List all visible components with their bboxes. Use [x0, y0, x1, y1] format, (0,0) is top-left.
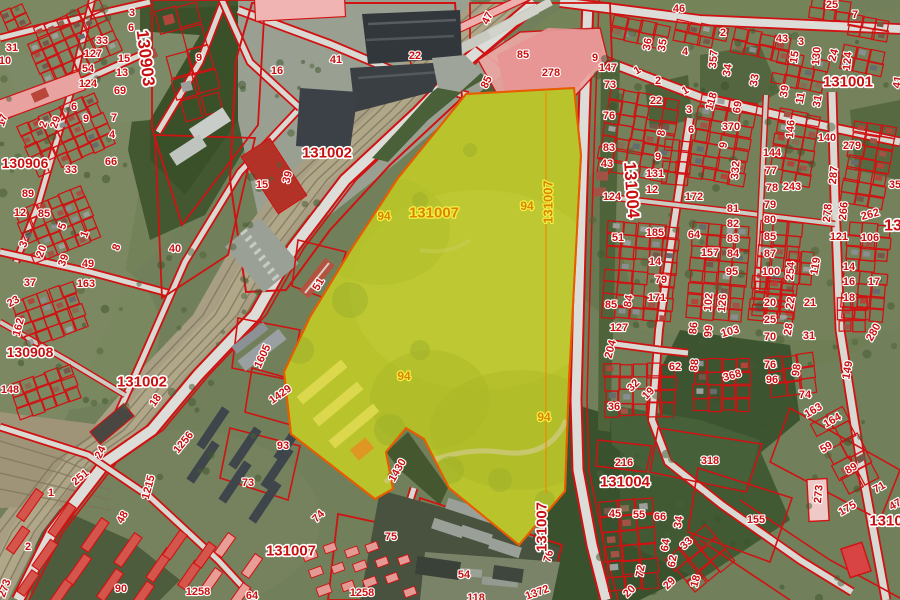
svg-text:14: 14	[649, 256, 662, 268]
svg-text:84: 84	[727, 248, 740, 260]
svg-text:78: 78	[766, 182, 778, 194]
svg-text:140: 140	[818, 132, 836, 144]
svg-text:118: 118	[467, 592, 485, 600]
svg-text:4: 4	[109, 129, 116, 141]
svg-text:15: 15	[788, 50, 802, 64]
svg-text:54: 54	[82, 63, 95, 75]
svg-text:243: 243	[783, 181, 801, 193]
svg-text:254: 254	[784, 261, 798, 281]
svg-text:22: 22	[409, 50, 421, 62]
svg-text:18: 18	[843, 292, 855, 304]
svg-text:55: 55	[633, 509, 645, 521]
svg-text:131007: 131007	[266, 542, 316, 559]
svg-text:3: 3	[686, 104, 692, 116]
svg-text:31: 31	[803, 330, 815, 342]
svg-text:1: 1	[48, 487, 54, 499]
svg-text:148: 148	[1, 384, 19, 396]
svg-text:64: 64	[688, 229, 701, 241]
svg-text:40: 40	[169, 243, 181, 255]
svg-text:70: 70	[764, 331, 776, 343]
svg-text:77: 77	[765, 165, 777, 177]
svg-text:130: 130	[810, 46, 824, 65]
svg-text:64: 64	[246, 590, 259, 600]
svg-text:127: 127	[84, 48, 102, 60]
svg-text:127: 127	[610, 322, 628, 334]
svg-text:10: 10	[0, 55, 11, 67]
svg-text:94: 94	[520, 199, 534, 213]
svg-text:12: 12	[646, 184, 658, 196]
svg-text:131001: 131001	[823, 73, 873, 90]
svg-text:278: 278	[542, 67, 560, 79]
svg-text:102: 102	[702, 292, 716, 311]
svg-text:4: 4	[682, 46, 689, 58]
svg-text:25: 25	[764, 314, 776, 326]
svg-text:157: 157	[701, 247, 719, 259]
svg-text:76: 76	[764, 359, 776, 371]
svg-text:279: 279	[843, 140, 861, 152]
svg-text:33: 33	[748, 73, 762, 87]
svg-text:6: 6	[71, 101, 77, 113]
svg-text:73: 73	[242, 477, 254, 489]
svg-text:85: 85	[764, 231, 776, 243]
svg-text:88: 88	[688, 358, 701, 371]
svg-text:287: 287	[827, 165, 841, 184]
svg-text:124: 124	[841, 51, 855, 71]
svg-text:46: 46	[673, 3, 685, 15]
svg-text:73: 73	[604, 79, 616, 91]
svg-text:69: 69	[114, 85, 126, 97]
svg-text:171: 171	[648, 292, 666, 304]
svg-text:11: 11	[794, 91, 808, 105]
svg-text:146: 146	[784, 119, 798, 138]
svg-text:41: 41	[891, 75, 900, 89]
svg-text:62: 62	[669, 361, 681, 373]
svg-text:9: 9	[655, 151, 661, 163]
svg-text:66: 66	[654, 511, 666, 523]
svg-text:54: 54	[458, 569, 471, 581]
svg-text:332: 332	[729, 160, 743, 179]
svg-text:17: 17	[868, 276, 880, 288]
svg-text:82: 82	[727, 218, 739, 230]
svg-text:2: 2	[25, 541, 31, 553]
svg-text:121: 121	[830, 231, 848, 243]
svg-text:80: 80	[764, 214, 776, 226]
svg-text:36: 36	[641, 37, 655, 51]
svg-text:85: 85	[605, 299, 617, 311]
svg-text:89: 89	[22, 188, 34, 200]
svg-text:370: 370	[722, 121, 740, 133]
svg-text:51: 51	[612, 232, 624, 244]
svg-text:96: 96	[766, 374, 778, 386]
svg-text:278: 278	[821, 203, 835, 222]
svg-text:318: 318	[701, 455, 719, 467]
svg-text:2: 2	[655, 75, 661, 87]
svg-text:99: 99	[702, 324, 715, 337]
svg-text:35: 35	[889, 179, 900, 191]
svg-text:94: 94	[377, 209, 391, 223]
svg-text:14: 14	[843, 261, 856, 273]
svg-text:172: 172	[685, 191, 703, 203]
svg-text:62: 62	[666, 554, 680, 568]
svg-text:94: 94	[537, 410, 551, 424]
svg-text:12: 12	[14, 207, 26, 219]
svg-text:33: 33	[65, 164, 77, 176]
svg-text:216: 216	[615, 457, 633, 469]
svg-text:90: 90	[115, 583, 127, 595]
svg-text:22: 22	[784, 296, 798, 310]
svg-text:79: 79	[655, 274, 667, 286]
svg-text:124: 124	[603, 191, 622, 203]
svg-text:85: 85	[517, 49, 529, 61]
svg-text:15: 15	[118, 53, 130, 65]
svg-text:39: 39	[778, 84, 792, 98]
svg-text:94: 94	[397, 369, 411, 383]
svg-text:13: 13	[116, 67, 128, 79]
svg-text:131004: 131004	[600, 473, 651, 490]
svg-text:131004: 131004	[620, 161, 643, 219]
svg-text:106: 106	[861, 232, 879, 244]
svg-text:1310: 1310	[869, 512, 900, 529]
svg-text:36: 36	[608, 401, 620, 413]
svg-text:100: 100	[762, 266, 780, 278]
svg-text:2: 2	[720, 27, 726, 39]
svg-text:9: 9	[592, 52, 598, 64]
svg-text:163: 163	[77, 278, 95, 290]
svg-text:74: 74	[799, 389, 812, 401]
svg-text:41: 41	[330, 54, 342, 66]
svg-text:266: 266	[837, 201, 851, 220]
svg-text:87: 87	[764, 248, 776, 260]
svg-text:95: 95	[726, 266, 738, 278]
svg-text:3: 3	[798, 36, 804, 48]
svg-text:131007: 131007	[533, 502, 550, 552]
svg-text:98: 98	[790, 363, 804, 377]
svg-text:144: 144	[763, 147, 782, 159]
svg-text:85: 85	[38, 208, 50, 220]
svg-text:37: 37	[24, 277, 36, 289]
svg-text:49: 49	[82, 258, 94, 270]
svg-text:21: 21	[804, 297, 816, 309]
svg-text:273: 273	[812, 484, 826, 503]
svg-text:93: 93	[277, 440, 289, 452]
svg-text:83: 83	[603, 142, 615, 154]
svg-text:1258: 1258	[350, 587, 374, 599]
svg-text:75: 75	[385, 531, 397, 543]
svg-text:31: 31	[6, 42, 18, 54]
svg-text:131007: 131007	[409, 204, 459, 221]
svg-text:79: 79	[764, 199, 776, 211]
svg-text:147: 147	[599, 62, 617, 74]
svg-text:7: 7	[111, 112, 117, 124]
svg-text:131002: 131002	[117, 373, 167, 390]
svg-text:1258: 1258	[186, 586, 210, 598]
svg-text:9: 9	[83, 113, 89, 125]
svg-text:185: 185	[646, 227, 664, 239]
svg-text:6: 6	[688, 124, 694, 136]
svg-text:7: 7	[852, 9, 858, 21]
svg-text:126: 126	[716, 293, 730, 312]
svg-text:16: 16	[843, 276, 855, 288]
svg-text:28: 28	[782, 322, 796, 336]
svg-text:69: 69	[731, 100, 745, 114]
svg-text:3: 3	[129, 7, 135, 19]
svg-text:81: 81	[727, 203, 739, 215]
svg-text:25: 25	[826, 0, 838, 11]
svg-text:130906: 130906	[2, 155, 49, 171]
svg-text:16: 16	[271, 65, 283, 77]
svg-text:20: 20	[764, 297, 776, 309]
svg-text:72: 72	[634, 564, 648, 578]
svg-text:15: 15	[256, 179, 268, 191]
svg-text:86: 86	[687, 321, 700, 334]
svg-text:43: 43	[601, 158, 613, 170]
svg-text:33: 33	[96, 35, 108, 47]
svg-text:131: 131	[646, 168, 664, 180]
svg-text:9: 9	[196, 52, 202, 64]
svg-text:357: 357	[707, 49, 721, 68]
svg-text:131007: 131007	[541, 180, 556, 223]
svg-text:66: 66	[105, 156, 117, 168]
svg-text:31: 31	[811, 94, 825, 108]
svg-text:45: 45	[609, 508, 621, 520]
svg-text:76: 76	[603, 110, 615, 122]
svg-text:22: 22	[650, 95, 662, 107]
svg-text:130908: 130908	[7, 344, 54, 360]
svg-text:35: 35	[656, 38, 670, 52]
svg-text:83: 83	[727, 233, 739, 245]
svg-text:13: 13	[884, 218, 900, 235]
svg-text:124: 124	[79, 78, 98, 90]
svg-text:131002: 131002	[302, 144, 352, 161]
svg-text:43: 43	[776, 33, 788, 45]
svg-text:155: 155	[747, 514, 765, 526]
